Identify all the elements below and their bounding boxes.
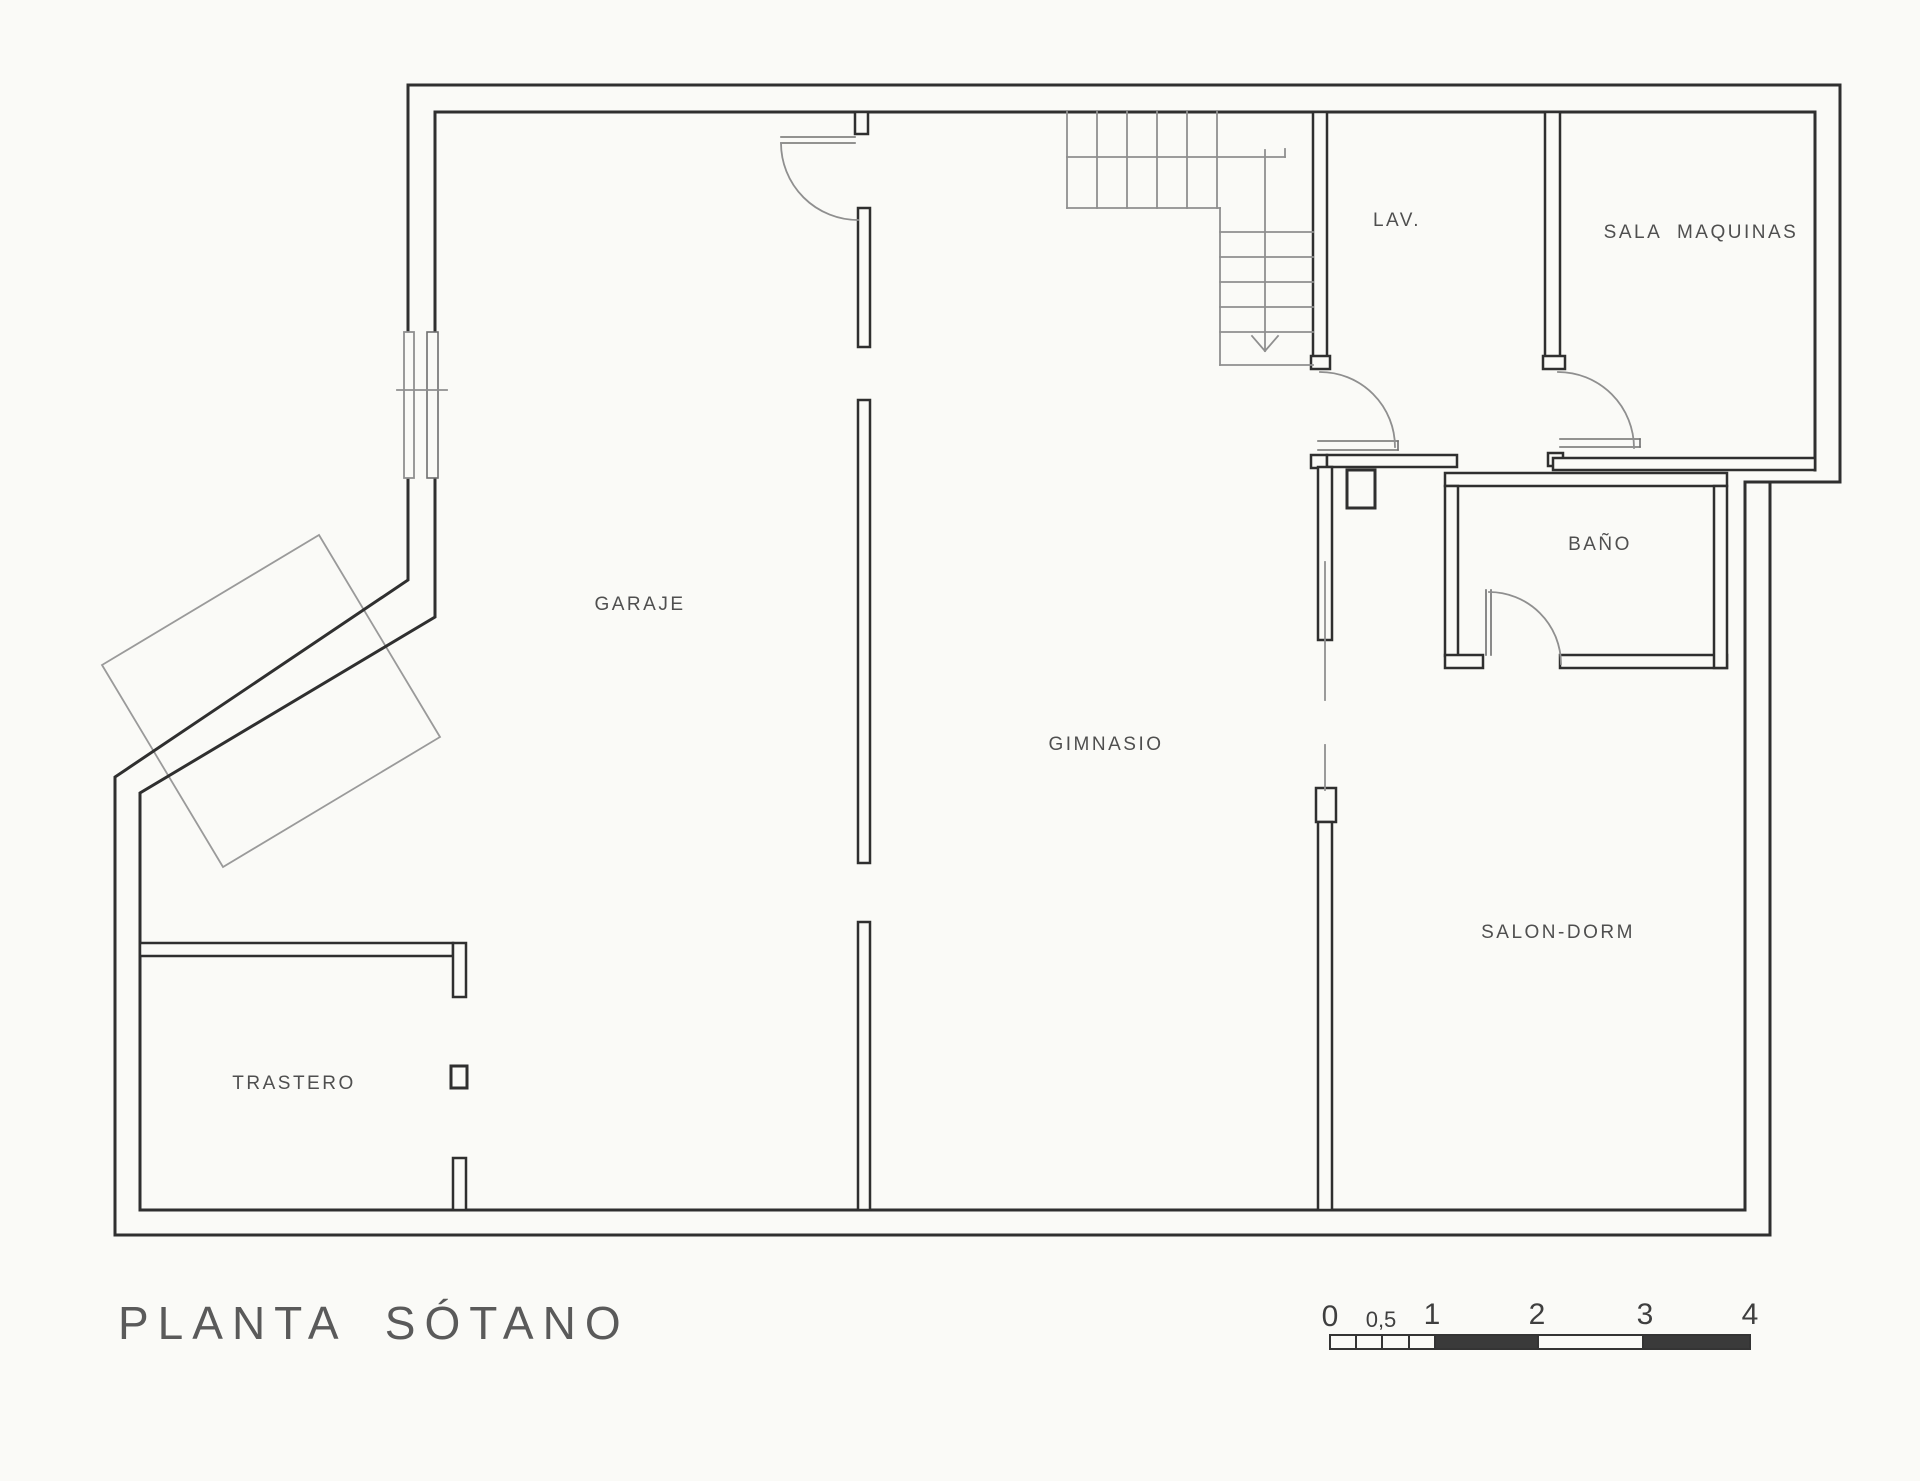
room-label-trastero: TRASTERO [232,1073,355,1095]
staircase [1067,112,1313,365]
garage-window [397,332,447,478]
room-label-sala-maquinas: SALA MAQUINAS [1604,222,1799,244]
room-label-garaje: GARAJE [594,594,685,616]
column-post [1347,470,1375,508]
ramp-outline [102,535,440,867]
room-label-salon-dorm: SALON-DORM [1481,922,1635,944]
scale-label-2: 2 [1529,1298,1546,1332]
scale-label-3: 3 [1637,1298,1654,1332]
room-label-gimnasio: GIMNASIO [1048,734,1163,756]
door-bano [1486,590,1561,664]
interior-walls [140,112,1815,1210]
room-label-lav: LAV. [1373,210,1421,232]
scale-label-4: 4 [1742,1298,1759,1332]
scale-bar-graphic [1330,1335,1750,1349]
room-label-bano: BAÑO [1568,534,1632,556]
trastero-column [451,1066,467,1088]
door-sala-maquinas [1558,372,1640,448]
door-garage-gym [781,137,858,220]
scale-label-1: 1 [1424,1298,1441,1332]
floor-plan-page: GARAJE GIMNASIO TRASTERO SALON-DORM BAÑO… [0,0,1920,1481]
plan-title: PLANTA SÓTANO [118,1296,630,1350]
door-hall-lav [1318,372,1398,450]
scale-label-0: 0 [1322,1300,1339,1334]
scale-label-0-5: 0,5 [1366,1307,1397,1333]
